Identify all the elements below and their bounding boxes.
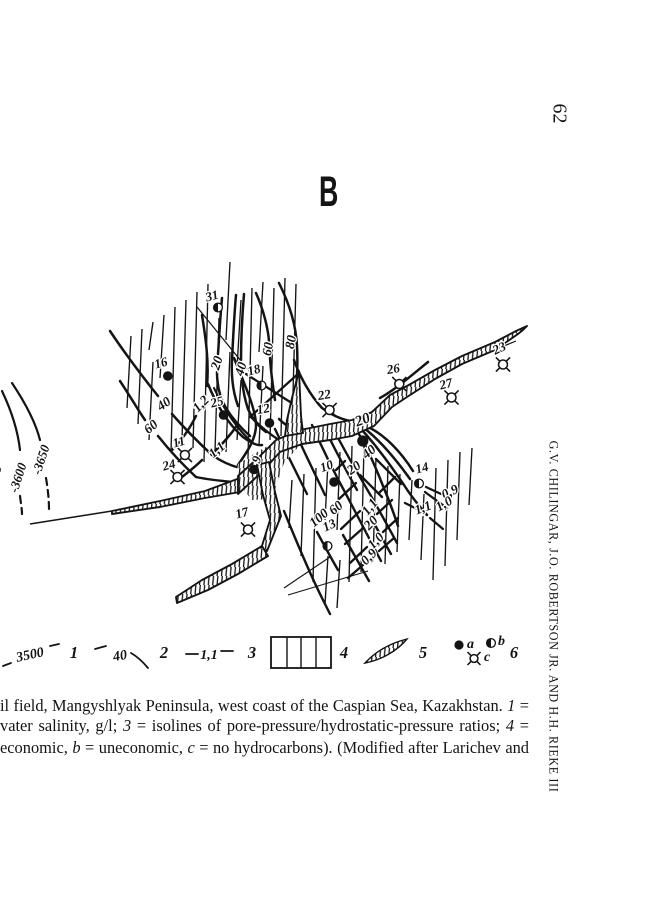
svg-text:-3600: -3600 — [6, 460, 30, 494]
svg-text:b: b — [498, 634, 505, 649]
svg-text:14: 14 — [414, 459, 431, 477]
svg-text:3: 3 — [247, 643, 256, 662]
svg-text:17: 17 — [234, 504, 251, 522]
svg-text:0: 0 — [0, 463, 5, 474]
svg-text:18: 18 — [246, 361, 263, 379]
svg-text:3500: 3500 — [14, 645, 45, 666]
svg-text:22: 22 — [316, 386, 333, 403]
svg-text:1: 1 — [70, 643, 78, 662]
svg-text:25: 25 — [208, 393, 226, 411]
svg-text:40: 40 — [153, 393, 174, 414]
svg-text:40: 40 — [111, 648, 128, 665]
svg-text:c: c — [484, 650, 491, 665]
svg-text:12: 12 — [256, 400, 272, 417]
svg-text:80: 80 — [282, 334, 299, 350]
svg-text:5: 5 — [419, 643, 427, 662]
svg-text:a: a — [467, 637, 474, 652]
svg-text:-3650: -3650 — [29, 442, 53, 476]
svg-text:16: 16 — [153, 354, 170, 372]
svg-text:2: 2 — [159, 643, 168, 662]
svg-text:6: 6 — [510, 643, 519, 662]
svg-text:4: 4 — [339, 643, 348, 662]
svg-text:31: 31 — [203, 287, 220, 305]
svg-text:1,1: 1,1 — [200, 648, 218, 663]
svg-text:24: 24 — [160, 456, 178, 474]
svg-text:27: 27 — [437, 375, 455, 393]
svg-text:26: 26 — [385, 360, 402, 377]
svg-text:20: 20 — [207, 354, 226, 373]
svg-text:10: 10 — [318, 456, 336, 475]
svg-text:60: 60 — [259, 341, 276, 357]
